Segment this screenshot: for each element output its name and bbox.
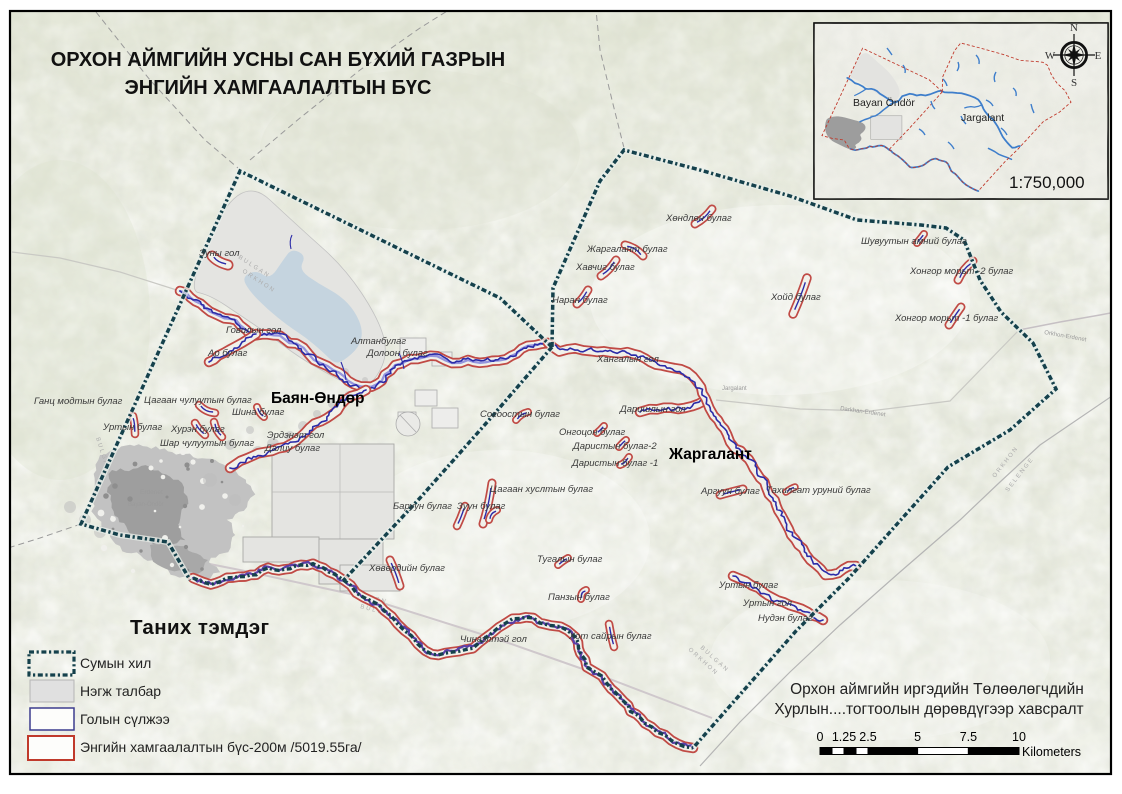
svg-text:2.5: 2.5 (859, 730, 876, 744)
svg-text:Панзын булаг: Панзын булаг (548, 592, 610, 603)
svg-text:1.25: 1.25 (832, 730, 856, 744)
svg-text:Даришлын гол: Даришлын гол (619, 404, 686, 415)
svg-text:Далиу булаг: Далиу булаг (264, 443, 320, 454)
svg-text:Цагаан хуслтын булаг: Цагаан хуслтын булаг (490, 484, 593, 495)
svg-text:Хонгор морьт -1 булаг: Хонгор морьт -1 булаг (894, 313, 999, 324)
svg-text:Сумын хил: Сумын хил (80, 655, 151, 671)
svg-text:Хойд булаг: Хойд булаг (770, 292, 821, 303)
svg-text:Хурлын....тогтоолын дөрөвдүгээ: Хурлын....тогтоолын дөрөвдүгээр хавсралт (774, 701, 1083, 718)
svg-text:Хавчиг булаг: Хавчиг булаг (575, 262, 635, 273)
svg-text:Баруун булаг: Баруун булаг (393, 501, 452, 512)
svg-text:Хөвөрдийн булаг: Хөвөрдийн булаг (368, 563, 445, 574)
svg-text:Алтанбулаг: Алтанбулаг (350, 336, 406, 347)
svg-text:Жаргалант: Жаргалант (668, 446, 752, 463)
svg-text:Даристын булаг -1: Даристын булаг -1 (571, 458, 658, 469)
svg-text:Ганц модтын булаг: Ганц модтын булаг (34, 396, 123, 407)
svg-text:Энгийн хамгаалалтын бүс-200м /: Энгийн хамгаалалтын бүс-200м /5019.55га/ (80, 739, 362, 755)
svg-text:Kilometers: Kilometers (1022, 745, 1081, 759)
svg-text:Тахилгат уруний булаг: Тахилгат уруний булаг (766, 485, 871, 496)
svg-text:Наран булаг: Наран булаг (552, 295, 608, 306)
svg-text:Jargalant: Jargalant (961, 112, 1004, 124)
svg-text:Erdenet: Erdenet (140, 489, 163, 496)
svg-text:E: E (1095, 50, 1102, 62)
svg-text:Уртын гол: Уртын гол (742, 598, 793, 609)
svg-text:ОРХОН АЙМГИЙН УСНЫ САН БҮХИЙ Г: ОРХОН АЙМГИЙН УСНЫ САН БҮХИЙ ГАЗРЫН (51, 47, 506, 71)
svg-text:S: S (1071, 77, 1077, 89)
svg-text:Хурэн булаг: Хурэн булаг (170, 424, 225, 435)
svg-text:Цагаан чулуутын булаг: Цагаан чулуутын булаг (144, 395, 252, 406)
svg-text:10: 10 (1012, 730, 1026, 744)
svg-text:Тугалын булаг: Тугалын булаг (537, 554, 603, 565)
svg-text:N: N (1070, 22, 1078, 34)
svg-text:Таних тэмдэг: Таних тэмдэг (130, 616, 269, 639)
svg-text:Говилын гол: Говилын гол (226, 325, 282, 336)
svg-text:Хот сайрын булаг: Хот сайрын булаг (568, 631, 652, 642)
svg-text:Голын сүлжээ: Голын сүлжээ (80, 711, 170, 727)
svg-text:Баян-Өндөр: Баян-Өндөр (271, 390, 365, 407)
svg-text:5: 5 (914, 730, 921, 744)
svg-text:Онгоцон булаг: Онгоцон булаг (559, 427, 625, 438)
svg-text:Согоостын булаг: Согоостын булаг (480, 409, 560, 420)
svg-text:Даристын булаг-2: Даристын булаг-2 (572, 441, 657, 452)
svg-text:Эрдэнэт гол: Эрдэнэт гол (267, 430, 325, 441)
svg-text:Нудэн булаг: Нудэн булаг (758, 613, 813, 624)
svg-text:Bayan-Öndör: Bayan-Öndör (128, 501, 164, 508)
svg-text:W: W (1045, 50, 1056, 62)
svg-text:1:750,000: 1:750,000 (1009, 173, 1085, 192)
svg-text:Шар чулуутын булаг: Шар чулуутын булаг (160, 438, 254, 449)
svg-text:Жаргалант булаг: Жаргалант булаг (586, 244, 668, 255)
svg-text:Bayan Öndör: Bayan Öndör (853, 97, 915, 109)
svg-text:7.5: 7.5 (960, 730, 977, 744)
svg-text:Орхон аймгийн иргэдийн Төлөөлө: Орхон аймгийн иргэдийн Төлөөлөгчдийн (790, 681, 1084, 698)
svg-text:Долоон булаг: Долоон булаг (366, 348, 428, 359)
svg-text:Хангалын гол: Хангалын гол (596, 354, 659, 365)
svg-text:Jargalant: Jargalant (722, 386, 747, 392)
svg-text:Нэгж талбар: Нэгж талбар (80, 683, 161, 699)
svg-text:Уртын булаг: Уртын булаг (718, 580, 778, 591)
svg-text:Шувуутын амний булаг: Шувуутын амний булаг (861, 236, 967, 247)
svg-text:Хонгор морьт -2 булаг: Хонгор морьт -2 булаг (909, 266, 1014, 277)
svg-text:Зуны гол: Зуны гол (199, 248, 240, 259)
svg-text:Уртын булаг: Уртын булаг (102, 422, 162, 433)
svg-text:Аргуун булаг: Аргуун булаг (700, 486, 760, 497)
svg-text:Чингэлтэй гол: Чингэлтэй гол (460, 634, 527, 645)
svg-text:Хөндлөн булаг: Хөндлөн булаг (665, 213, 732, 224)
svg-text:Ар булаг: Ар булаг (207, 348, 248, 359)
svg-text:Зуун булаг: Зуун булаг (457, 501, 506, 512)
svg-text:0: 0 (817, 730, 824, 744)
svg-text:ЭНГИЙН ХАМГААЛАЛТЫН БҮС: ЭНГИЙН ХАМГААЛАЛТЫН БҮС (125, 75, 432, 99)
svg-text:Шина булаг: Шина булаг (232, 407, 285, 418)
